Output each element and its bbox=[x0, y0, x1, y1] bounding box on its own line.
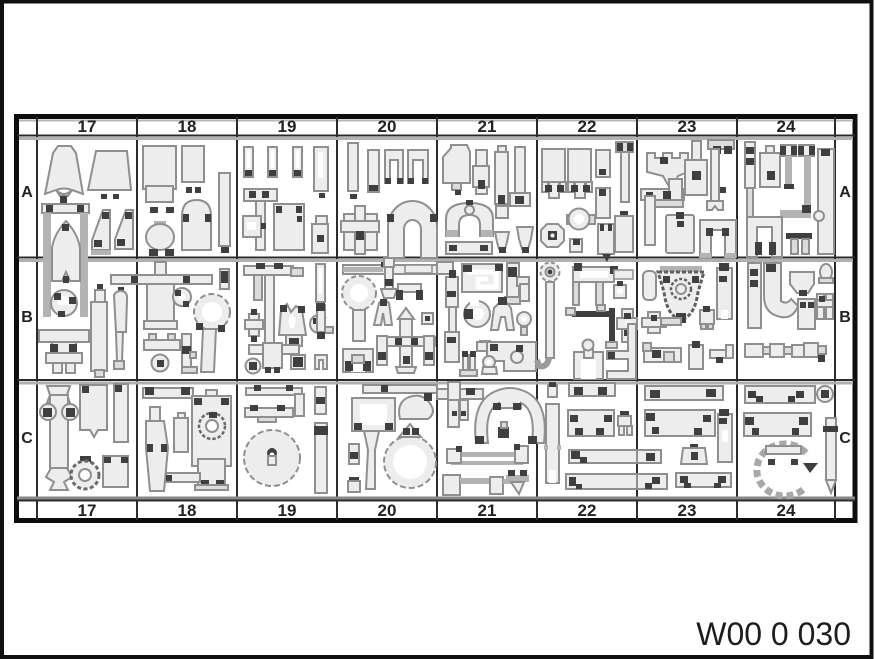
svg-text:W00 0 030: W00 0 030 bbox=[696, 616, 851, 652]
svg-text:23: 23 bbox=[678, 117, 697, 136]
svg-text:22: 22 bbox=[578, 501, 597, 520]
svg-text:20: 20 bbox=[378, 501, 397, 520]
svg-text:19: 19 bbox=[278, 117, 297, 136]
svg-text:21: 21 bbox=[478, 117, 497, 136]
svg-text:18: 18 bbox=[178, 117, 197, 136]
svg-text:23: 23 bbox=[678, 501, 697, 520]
svg-text:C: C bbox=[839, 430, 851, 447]
svg-text:19: 19 bbox=[278, 501, 297, 520]
svg-text:B: B bbox=[21, 309, 33, 326]
svg-text:20: 20 bbox=[378, 117, 397, 136]
svg-text:24: 24 bbox=[777, 117, 796, 136]
svg-text:A: A bbox=[839, 184, 851, 201]
svg-text:A: A bbox=[21, 184, 33, 201]
svg-text:B: B bbox=[839, 309, 851, 326]
svg-text:21: 21 bbox=[478, 501, 497, 520]
svg-text:18: 18 bbox=[178, 501, 197, 520]
svg-text:24: 24 bbox=[777, 501, 796, 520]
svg-text:22: 22 bbox=[578, 117, 597, 136]
svg-text:17: 17 bbox=[78, 501, 97, 520]
svg-text:C: C bbox=[21, 430, 33, 447]
svg-text:17: 17 bbox=[78, 117, 97, 136]
